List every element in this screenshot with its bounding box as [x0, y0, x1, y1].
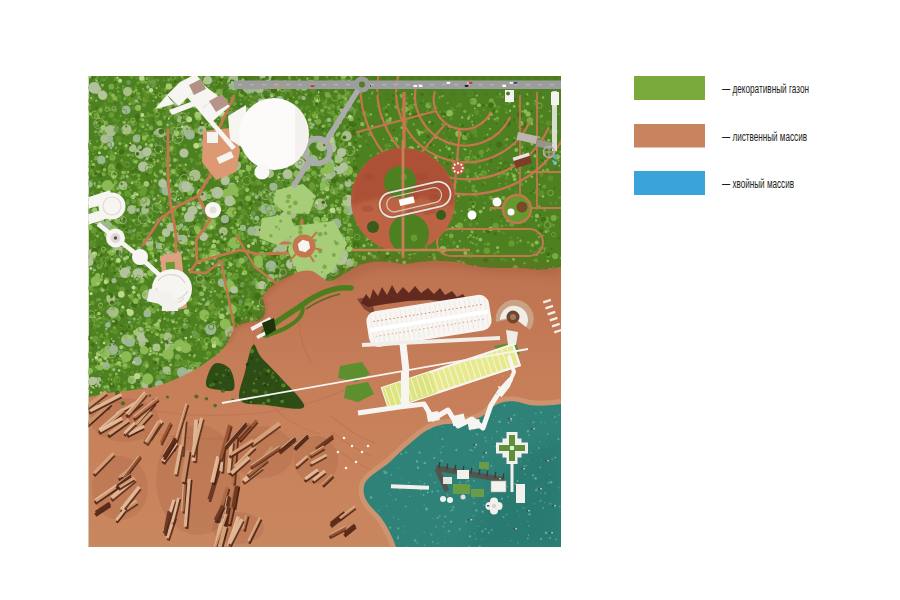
svg-text:— декоративный газон: — декоративный газон: [722, 81, 809, 96]
svg-text:— лиственный массив: — лиственный массив: [722, 129, 807, 144]
svg-text:— хвойный массив: — хвойный массив: [722, 176, 794, 191]
